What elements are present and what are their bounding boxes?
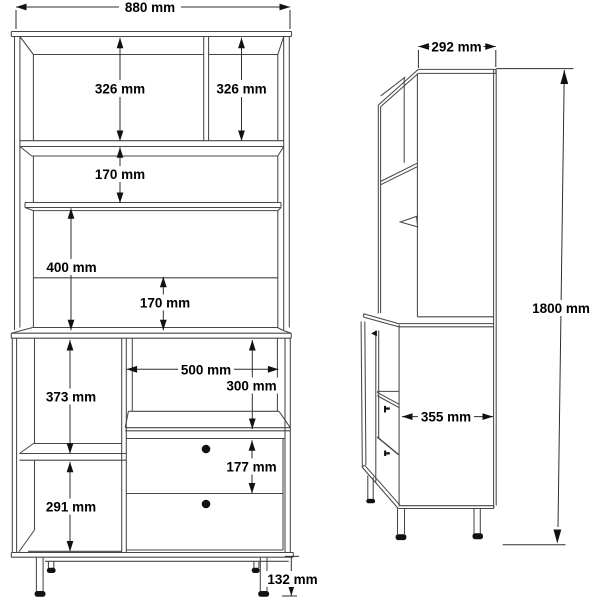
svg-text:326 mm: 326 mm: [95, 82, 145, 97]
svg-text:355 mm: 355 mm: [421, 410, 471, 425]
svg-text:177 mm: 177 mm: [226, 460, 276, 475]
svg-text:326 mm: 326 mm: [216, 82, 266, 97]
svg-text:880 mm: 880 mm: [125, 0, 175, 15]
svg-text:170 mm: 170 mm: [95, 167, 145, 182]
svg-text:291 mm: 291 mm: [46, 500, 96, 515]
svg-text:400 mm: 400 mm: [46, 260, 96, 275]
svg-text:292 mm: 292 mm: [431, 40, 481, 55]
svg-text:373 mm: 373 mm: [46, 390, 96, 405]
svg-text:500 mm: 500 mm: [181, 363, 231, 378]
svg-text:132 mm: 132 mm: [267, 572, 317, 587]
svg-text:1800 mm: 1800 mm: [532, 301, 590, 316]
svg-text:300 mm: 300 mm: [226, 379, 276, 394]
svg-text:170 mm: 170 mm: [140, 296, 190, 311]
